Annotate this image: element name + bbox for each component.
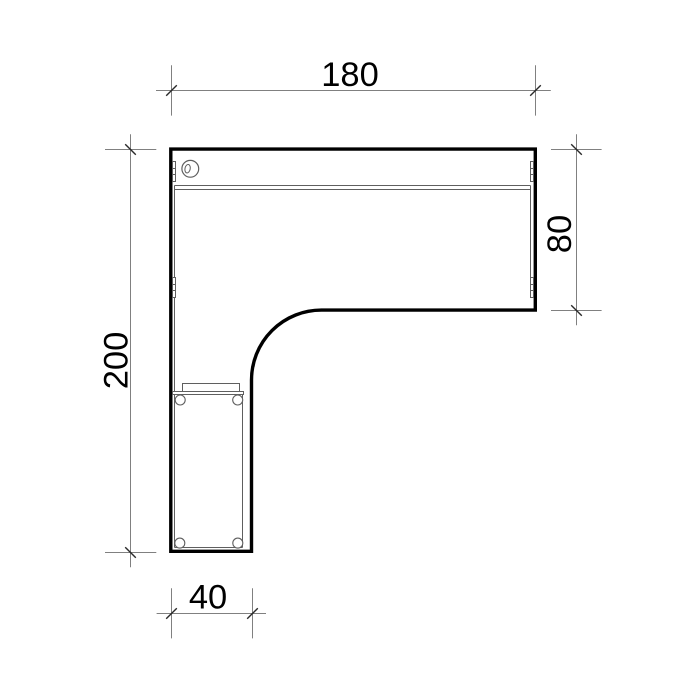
svg-text:180: 180 <box>321 56 379 94</box>
svg-text:200: 200 <box>97 332 135 390</box>
svg-text:80: 80 <box>541 215 579 253</box>
svg-text:40: 40 <box>189 578 227 616</box>
